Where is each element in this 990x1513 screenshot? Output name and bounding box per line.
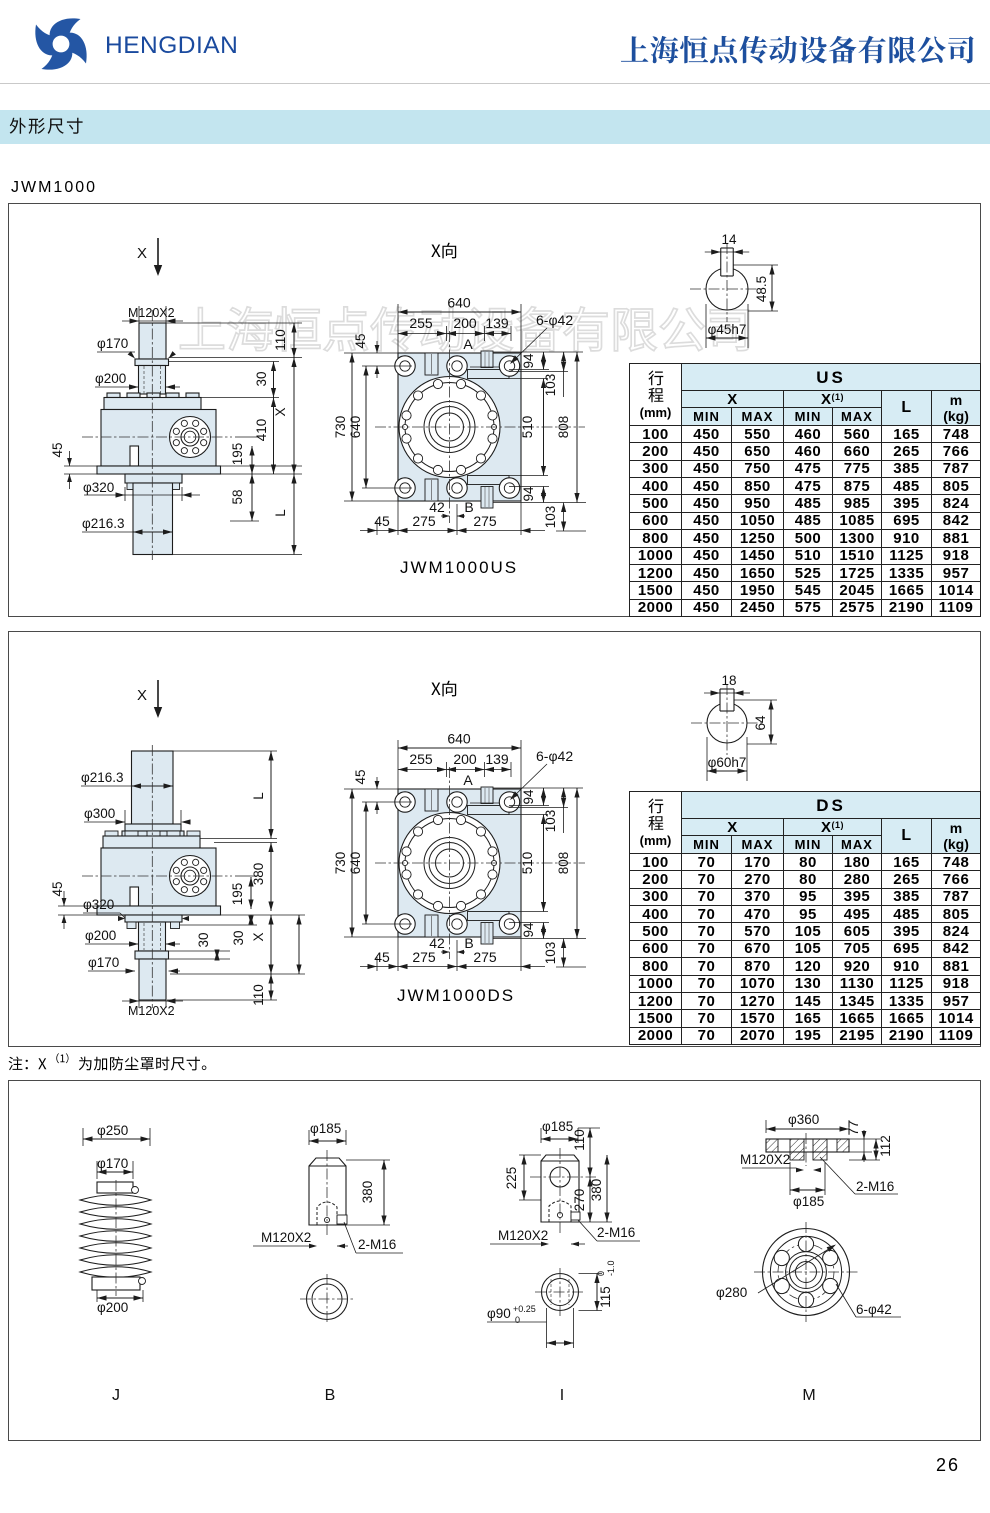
svg-text:M: M — [802, 1387, 815, 1404]
svg-text:139: 139 — [485, 751, 509, 767]
svg-text:φ320: φ320 — [83, 897, 114, 912]
svg-text:2-M16: 2-M16 — [597, 1225, 635, 1240]
svg-text:6-φ42: 6-φ42 — [856, 1302, 892, 1317]
svg-text:380: 380 — [360, 1181, 375, 1204]
svg-text:45: 45 — [374, 949, 390, 965]
svg-text:X: X — [137, 687, 147, 704]
svg-text:94: 94 — [521, 486, 536, 502]
svg-text:45: 45 — [50, 881, 65, 896]
svg-text:730: 730 — [333, 852, 348, 875]
svg-text:58: 58 — [230, 489, 245, 504]
svg-text:φ185: φ185 — [310, 1121, 341, 1136]
svg-text:200: 200 — [453, 751, 477, 767]
svg-text:94: 94 — [521, 353, 536, 369]
svg-text:195: 195 — [230, 883, 245, 906]
svg-text:B: B — [325, 1387, 336, 1404]
svg-text:0: 0 — [596, 1271, 606, 1276]
svg-text:M120X2: M120X2 — [498, 1228, 548, 1243]
svg-text:I: I — [560, 1387, 564, 1404]
svg-text:94: 94 — [521, 789, 536, 805]
svg-text:64: 64 — [753, 715, 768, 731]
svg-text:94: 94 — [521, 922, 536, 938]
svg-text:B: B — [464, 499, 473, 515]
svg-text:45: 45 — [353, 333, 368, 348]
svg-text:φ300: φ300 — [84, 806, 115, 821]
svg-text:φ200: φ200 — [97, 1300, 128, 1315]
svg-text:2-M16: 2-M16 — [856, 1179, 894, 1194]
svg-text:B: B — [464, 935, 473, 951]
svg-text:110: 110 — [273, 329, 288, 351]
svg-text:410: 410 — [254, 419, 269, 442]
svg-text:255: 255 — [409, 315, 433, 331]
svg-text:φ90: φ90 — [487, 1306, 511, 1321]
svg-text:275: 275 — [473, 949, 497, 965]
svg-text:φ185: φ185 — [793, 1194, 824, 1209]
svg-text:30: 30 — [231, 930, 246, 945]
svg-text:110: 110 — [251, 984, 266, 1006]
svg-text:2-M16: 2-M16 — [358, 1237, 396, 1252]
svg-text:φ360: φ360 — [788, 1112, 819, 1127]
svg-text:L: L — [251, 792, 266, 800]
svg-text:640: 640 — [348, 416, 363, 439]
svg-text:112: 112 — [878, 1135, 893, 1157]
svg-text:103: 103 — [543, 942, 558, 965]
svg-text:110: 110 — [572, 1129, 587, 1151]
svg-text:0: 0 — [515, 1315, 520, 1325]
svg-text:640: 640 — [348, 852, 363, 875]
svg-text:275: 275 — [412, 513, 436, 529]
svg-text:X: X — [273, 407, 288, 416]
svg-text:φ170: φ170 — [97, 336, 128, 351]
svg-text:380: 380 — [251, 863, 266, 886]
svg-text:18: 18 — [721, 673, 736, 688]
svg-text:X: X — [137, 245, 147, 262]
svg-text:48.5: 48.5 — [754, 276, 769, 302]
svg-text:φ185: φ185 — [542, 1119, 573, 1134]
svg-text:6-φ42: 6-φ42 — [536, 312, 573, 328]
svg-text:L: L — [273, 509, 288, 517]
svg-text:115: 115 — [598, 1286, 613, 1308]
svg-text:X: X — [251, 932, 266, 941]
svg-text:808: 808 — [556, 416, 571, 439]
svg-text:640: 640 — [447, 295, 471, 311]
svg-text:380: 380 — [589, 1179, 604, 1202]
svg-text:640: 640 — [447, 731, 471, 747]
svg-text:M120X2: M120X2 — [128, 306, 175, 320]
svg-text:30: 30 — [196, 932, 211, 947]
svg-text:φ250: φ250 — [97, 1123, 128, 1138]
svg-text:14: 14 — [721, 232, 737, 247]
svg-text:45: 45 — [374, 513, 390, 529]
svg-text:77: 77 — [846, 1120, 861, 1135]
svg-text:808: 808 — [556, 852, 571, 875]
svg-text:270: 270 — [572, 1189, 587, 1212]
svg-text:A: A — [463, 336, 473, 352]
svg-text:φ216.3: φ216.3 — [82, 516, 125, 531]
svg-text:φ170: φ170 — [88, 955, 119, 970]
svg-text:M120X2: M120X2 — [261, 1230, 311, 1245]
svg-text:730: 730 — [333, 416, 348, 439]
svg-text:J: J — [112, 1387, 120, 1404]
svg-text:30: 30 — [254, 371, 269, 386]
svg-text:M120X2: M120X2 — [128, 1004, 175, 1018]
svg-text:φ170: φ170 — [97, 1156, 128, 1171]
svg-text:225: 225 — [504, 1167, 519, 1190]
svg-text:φ60h7: φ60h7 — [708, 755, 747, 770]
svg-text:255: 255 — [409, 751, 433, 767]
svg-text:M120X2: M120X2 — [740, 1152, 790, 1167]
svg-text:-1.0: -1.0 — [606, 1260, 616, 1276]
svg-text:510: 510 — [520, 416, 535, 439]
svg-text:195: 195 — [230, 443, 245, 466]
svg-text:45: 45 — [50, 442, 65, 457]
svg-text:510: 510 — [520, 852, 535, 875]
svg-text:φ45h7: φ45h7 — [708, 322, 747, 337]
svg-text:+0.25: +0.25 — [513, 1304, 536, 1314]
svg-text:φ280: φ280 — [716, 1285, 747, 1300]
svg-text:A: A — [463, 772, 473, 788]
svg-text:φ320: φ320 — [83, 480, 114, 495]
svg-text:45: 45 — [353, 769, 368, 784]
svg-text:275: 275 — [473, 513, 497, 529]
svg-text:200: 200 — [453, 315, 477, 331]
svg-text:275: 275 — [412, 949, 436, 965]
svg-text:φ216.3: φ216.3 — [81, 770, 124, 785]
svg-text:139: 139 — [485, 315, 509, 331]
svg-text:103: 103 — [543, 506, 558, 529]
svg-text:φ200: φ200 — [95, 371, 126, 386]
svg-text:6-φ42: 6-φ42 — [536, 748, 573, 764]
svg-text:φ200: φ200 — [85, 928, 116, 943]
